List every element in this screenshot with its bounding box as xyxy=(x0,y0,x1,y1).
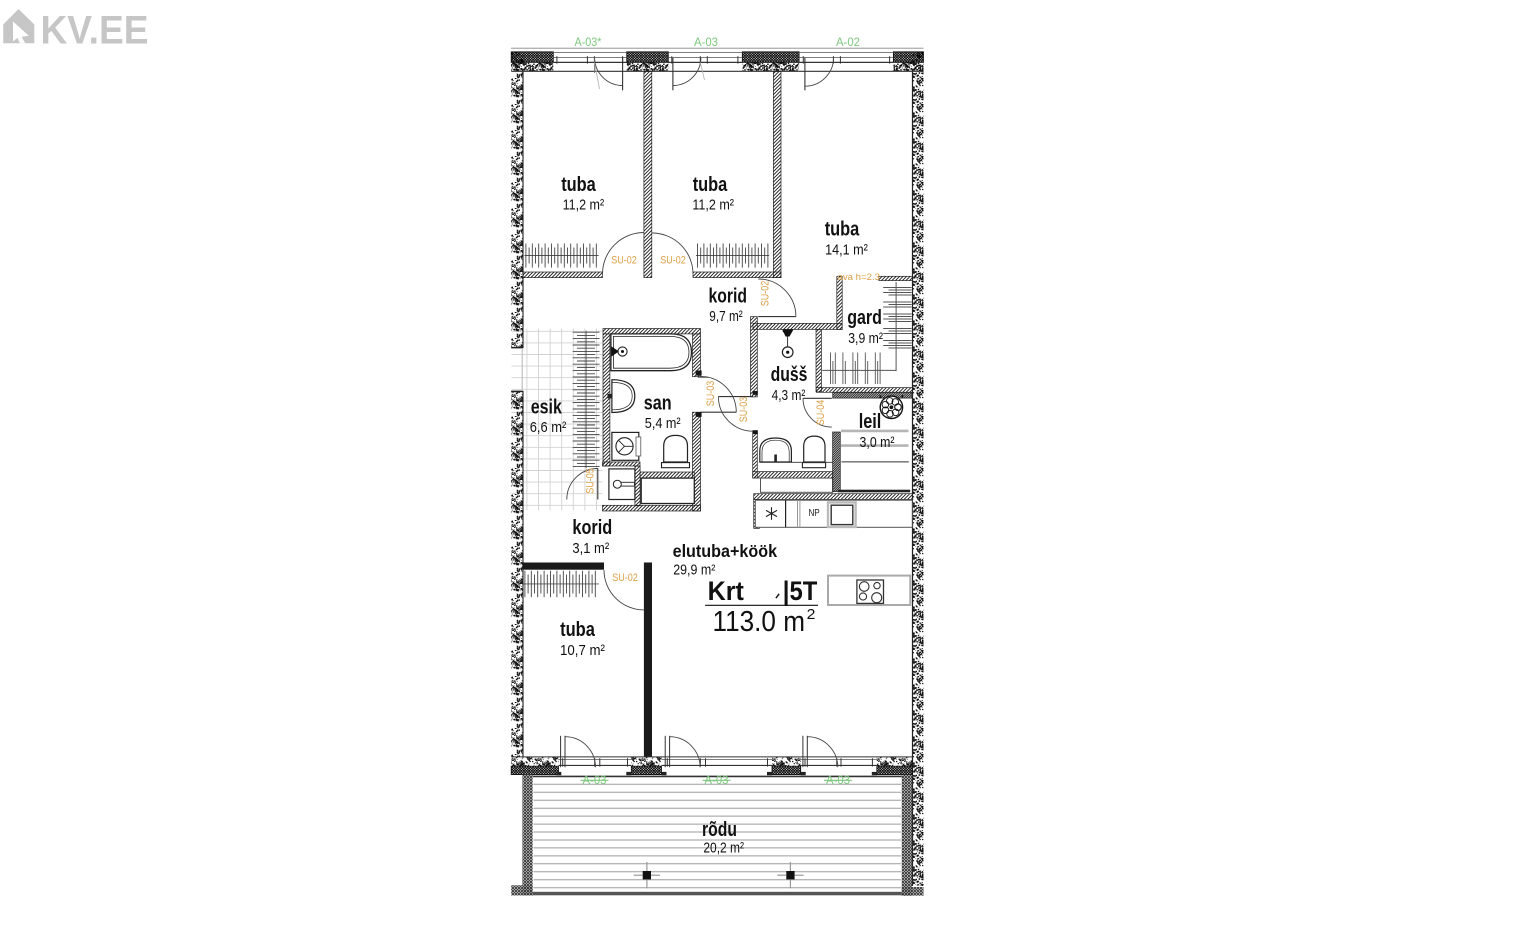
svg-text:A-03: A-03 xyxy=(705,775,729,787)
svg-text:tuba: tuba xyxy=(560,619,596,641)
svg-text:A-03: A-03 xyxy=(583,775,607,787)
svg-text:tuba: tuba xyxy=(693,174,728,196)
svg-text:SU-05: SU-05 xyxy=(585,468,597,494)
svg-text:elutuba+köök: elutuba+köök xyxy=(673,541,778,561)
svg-text:20,2 m²: 20,2 m² xyxy=(703,840,744,857)
svg-text:A-03: A-03 xyxy=(694,37,718,49)
svg-text:5,4 m²: 5,4 m² xyxy=(645,415,681,432)
svg-text:3,1 m²: 3,1 m² xyxy=(572,540,609,557)
svg-text:tuba: tuba xyxy=(825,219,860,241)
svg-text:9,7 m²: 9,7 m² xyxy=(709,308,742,325)
svg-text:dušš: dušš xyxy=(771,364,808,386)
svg-text:tuba: tuba xyxy=(561,174,596,196)
svg-text:A-02: A-02 xyxy=(836,37,860,49)
svg-text:Krt: Krt xyxy=(708,576,744,606)
svg-text:SU-02: SU-02 xyxy=(612,572,638,584)
svg-text:10,7 m²: 10,7 m² xyxy=(560,642,605,659)
svg-text:14,1 m²: 14,1 m² xyxy=(825,241,868,258)
svg-text:KV.EE: KV.EE xyxy=(41,9,149,53)
svg-text:NP: NP xyxy=(808,508,820,519)
svg-text:ava h=2.3: ava h=2.3 xyxy=(838,272,881,283)
svg-text:3,9 m²: 3,9 m² xyxy=(848,330,883,347)
svg-text:6,6 m²: 6,6 m² xyxy=(530,419,567,436)
svg-text:SU-02: SU-02 xyxy=(660,255,686,267)
svg-text:11,2 m²: 11,2 m² xyxy=(692,196,734,213)
svg-text:A-03: A-03 xyxy=(826,775,850,787)
svg-text:A-03*: A-03* xyxy=(575,37,602,49)
svg-text:SU-02: SU-02 xyxy=(760,281,772,307)
svg-text:korid: korid xyxy=(572,517,612,539)
svg-text:san: san xyxy=(644,393,672,415)
svg-text:11,2 m²: 11,2 m² xyxy=(563,196,605,213)
svg-text:SU-04: SU-04 xyxy=(815,400,827,426)
svg-text:korid: korid xyxy=(708,285,747,307)
svg-text:SU-03: SU-03 xyxy=(705,381,717,407)
svg-text:113.0 m: 113.0 m xyxy=(713,606,806,638)
svg-text:SU-03: SU-03 xyxy=(738,397,750,423)
svg-text:leil: leil xyxy=(859,411,882,433)
svg-text:esik: esik xyxy=(531,396,563,418)
svg-text:2: 2 xyxy=(807,607,816,623)
svg-text:rõdu: rõdu xyxy=(702,819,737,841)
svg-text:SU-02: SU-02 xyxy=(611,255,637,267)
svg-text:4,3 m²: 4,3 m² xyxy=(772,387,806,404)
svg-text:gard: gard xyxy=(847,307,882,329)
svg-text:3,0 m²: 3,0 m² xyxy=(860,434,895,451)
svg-text:|5T: |5T xyxy=(783,576,818,606)
